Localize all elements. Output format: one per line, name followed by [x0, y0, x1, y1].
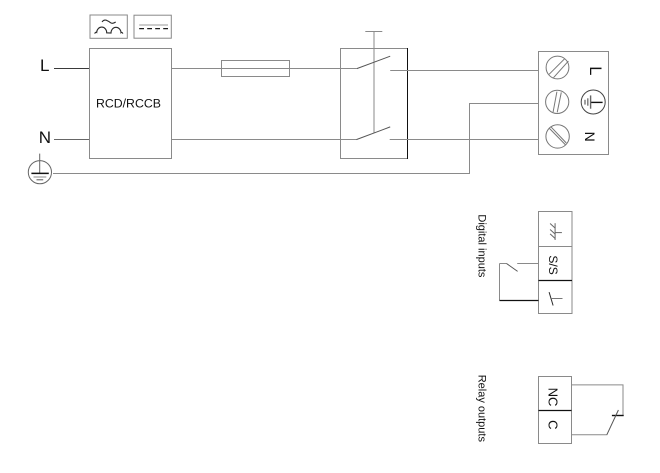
svg-text:Digital inputs: Digital inputs [475, 214, 487, 277]
svg-text:N: N [39, 128, 51, 147]
svg-text:NC: NC [546, 388, 561, 407]
svg-text:C: C [546, 420, 561, 429]
svg-text:RCD/RCCB: RCD/RCCB [96, 97, 161, 111]
svg-text:L: L [40, 56, 49, 75]
svg-text:Relay outputs: Relay outputs [475, 375, 487, 443]
svg-text:L: L [586, 66, 604, 75]
svg-text:S/S: S/S [546, 255, 560, 274]
svg-text:N: N [582, 132, 598, 142]
